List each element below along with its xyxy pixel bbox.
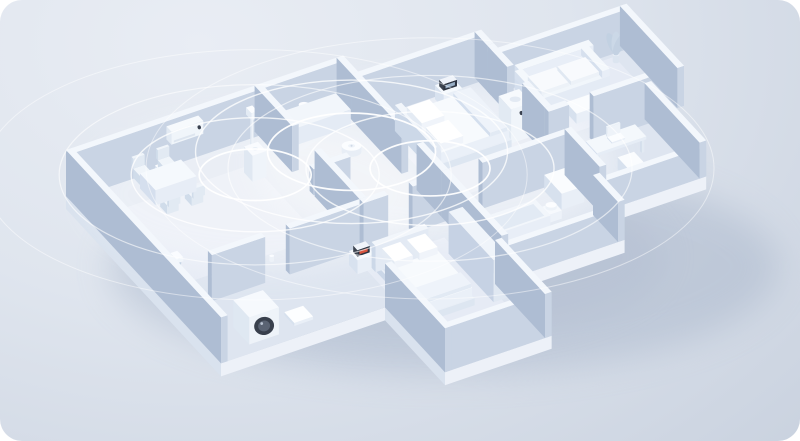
- smart-speaker-tower: [244, 142, 266, 182]
- motion-sensor: [269, 255, 274, 262]
- smart-home-3d-render: [0, 0, 800, 441]
- floorplan-canvas: [0, 0, 800, 441]
